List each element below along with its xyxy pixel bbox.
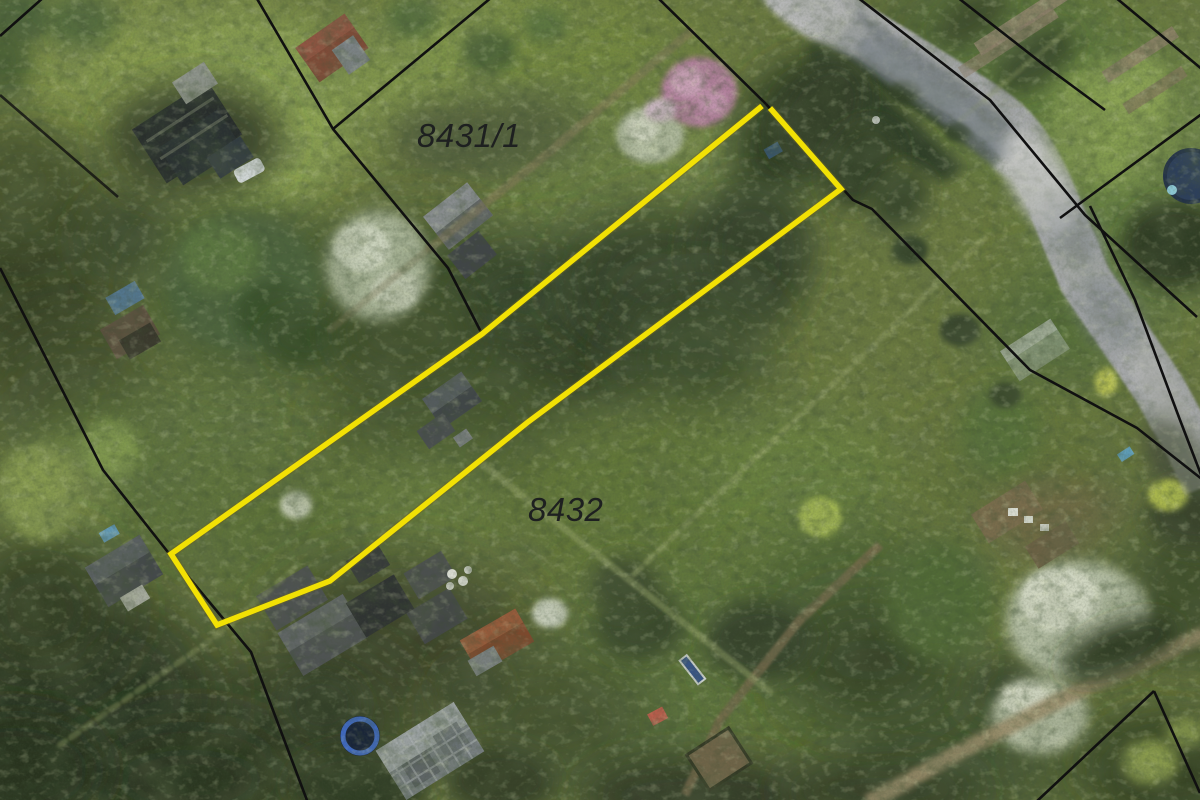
svg-text:8432: 8432 <box>528 491 603 528</box>
svg-text:8431/1: 8431/1 <box>417 117 521 154</box>
